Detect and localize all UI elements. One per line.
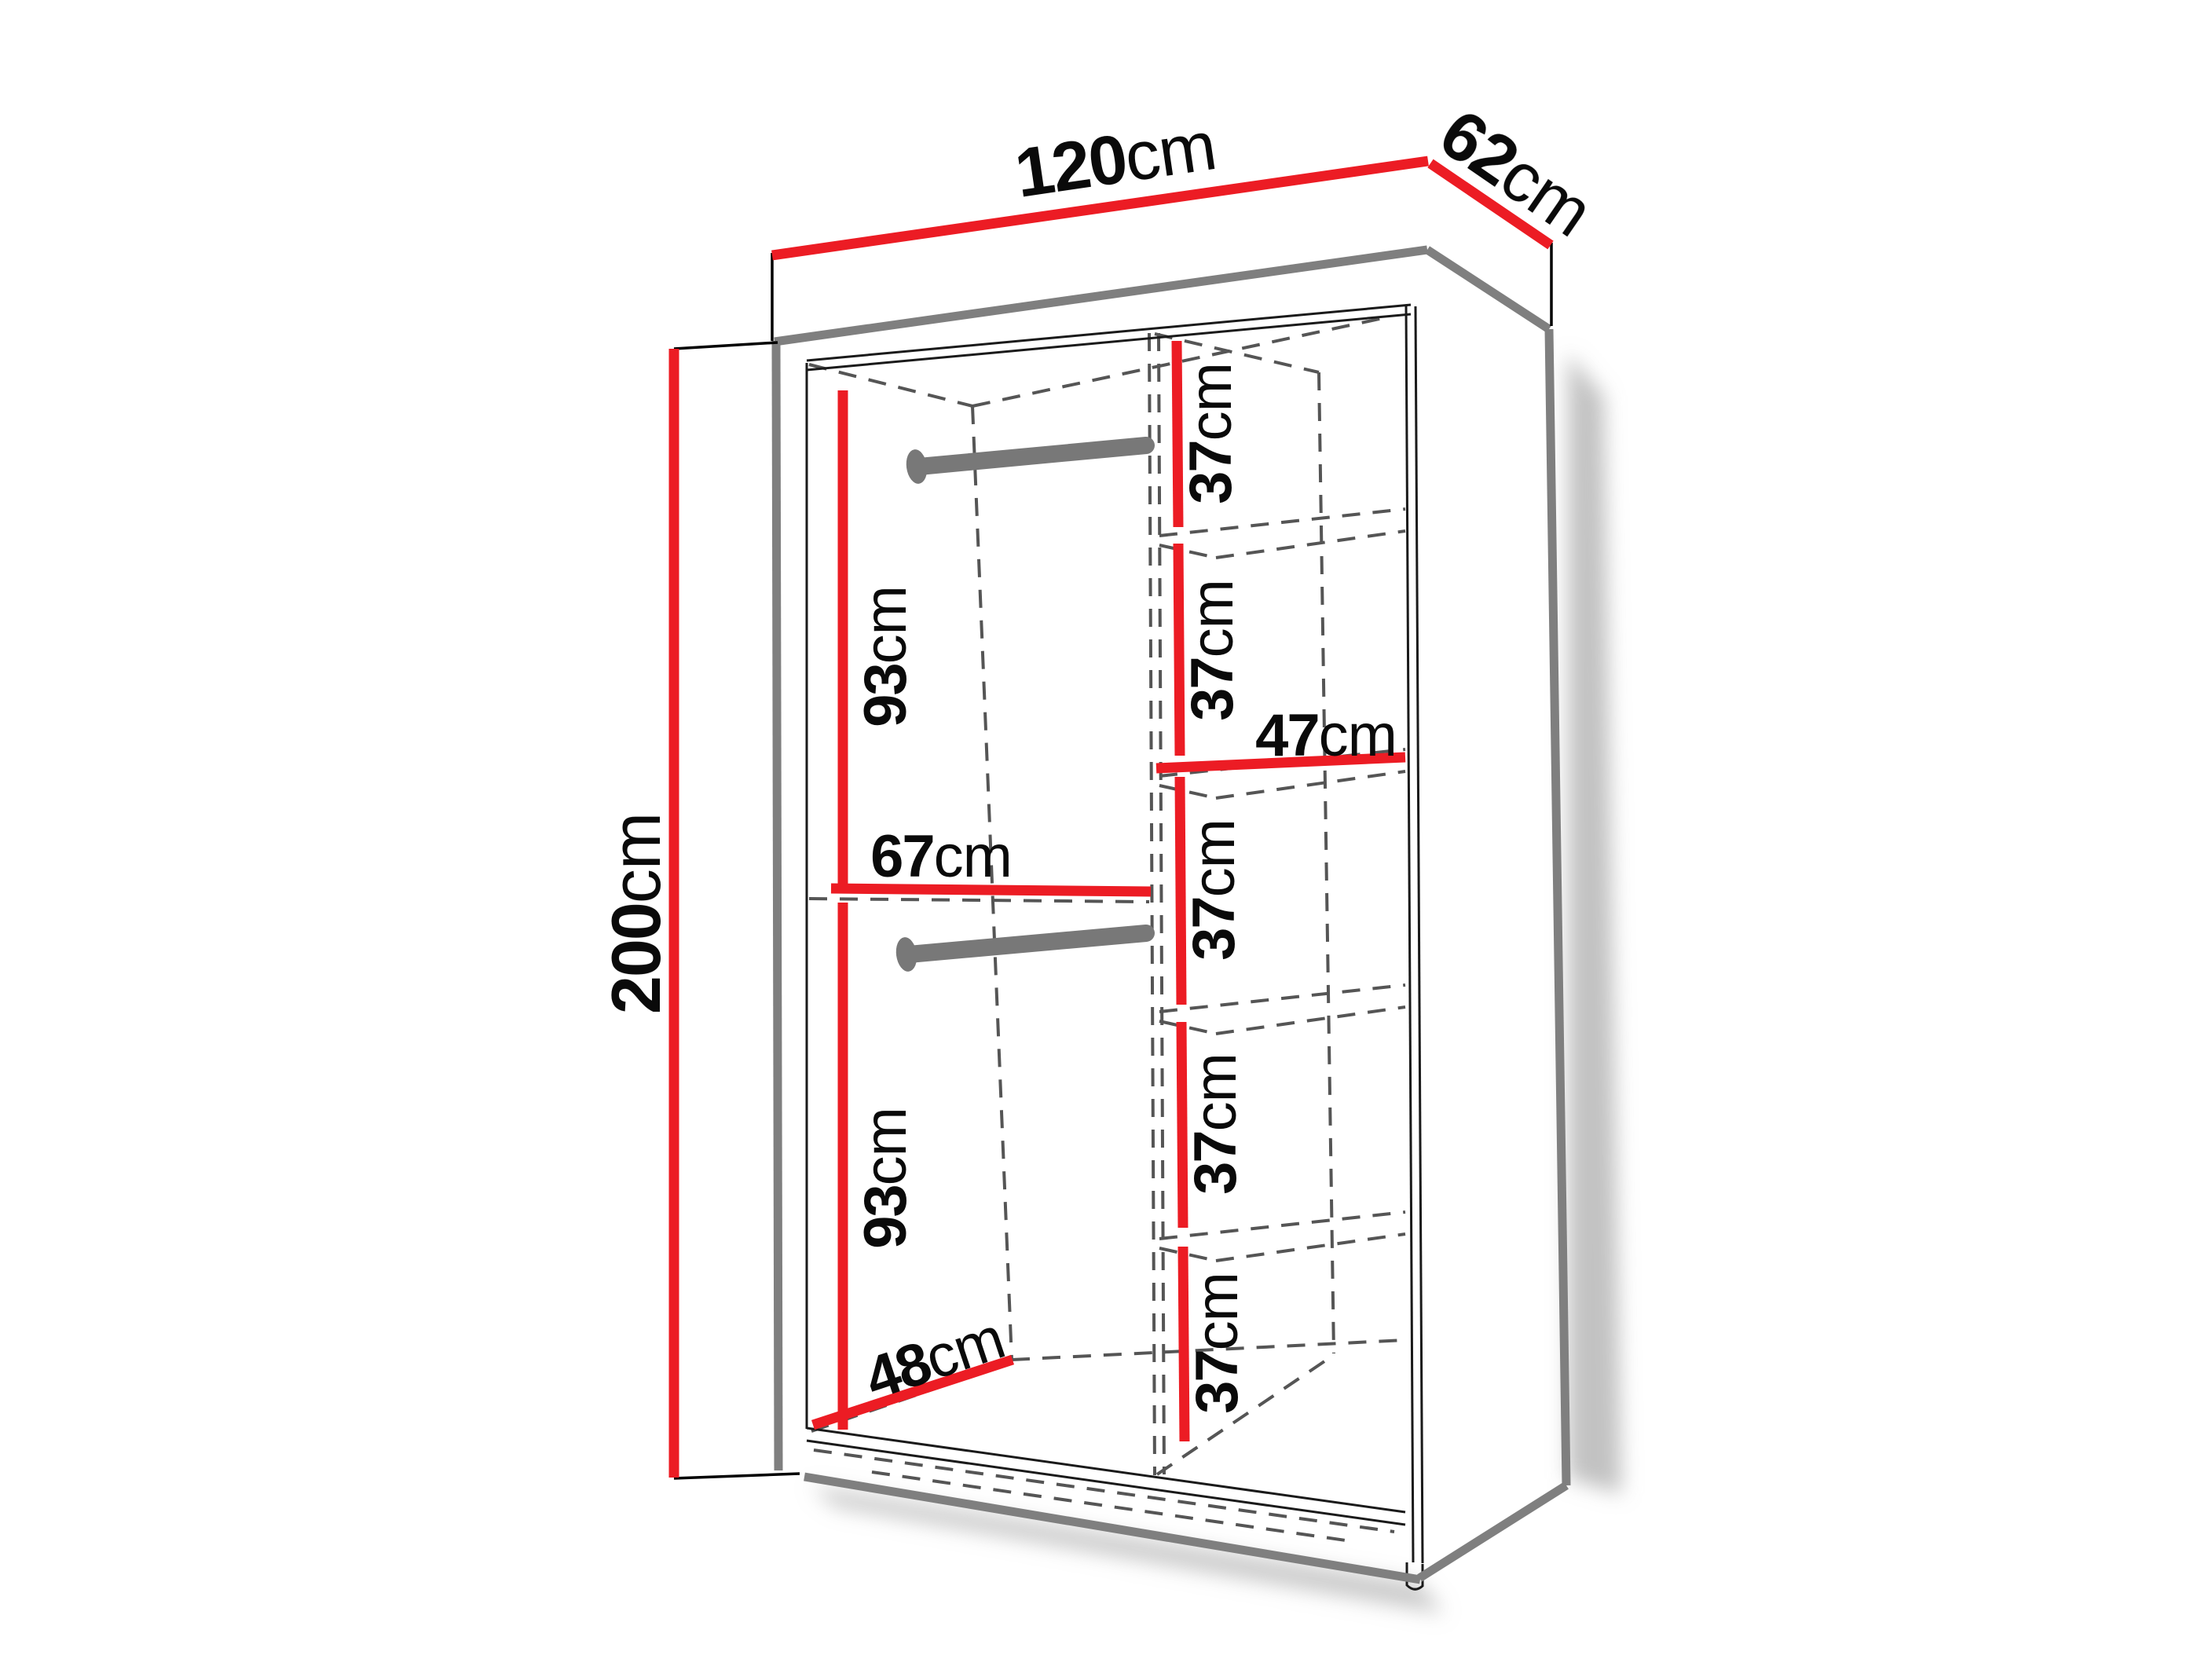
- dim-label-shelf-spacing-3: 37cm: [1185, 819, 1244, 961]
- hanging-rail-top: [904, 445, 1146, 485]
- dim-label-hanging-width: 67cm: [870, 827, 1012, 887]
- hanging-rail-bottom: [894, 933, 1146, 973]
- dim-label-shelf-spacing-5: 37cm: [1188, 1273, 1247, 1414]
- dim-label-height: 200cm: [602, 813, 671, 1014]
- dim-label-shelf-spacing-2: 37cm: [1183, 580, 1243, 721]
- wardrobe-dimension-diagram: 120cm 62cm 200cm 93cm 93cm 67cm 47cm 48c…: [0, 0, 2212, 1659]
- dim-label-hanging-bottom: 93cm: [856, 1108, 916, 1249]
- dim-label-shelf-width: 47cm: [1255, 706, 1397, 766]
- dim-label-shelf-spacing-1: 37cm: [1181, 363, 1241, 504]
- dim-label-hanging-top: 93cm: [856, 586, 916, 727]
- cabinet-shadow: [811, 353, 1621, 1613]
- dim-label-shelf-spacing-4: 37cm: [1186, 1053, 1246, 1195]
- diagram-linework: [0, 0, 2212, 1659]
